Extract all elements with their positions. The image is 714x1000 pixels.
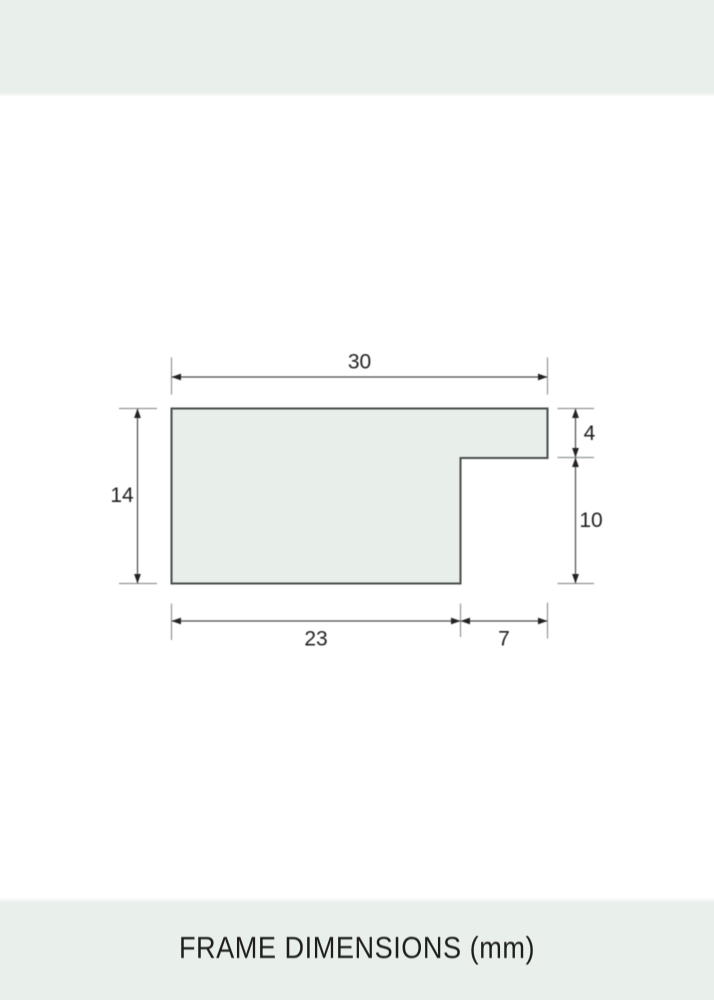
svg-text:7: 7 <box>498 628 510 651</box>
svg-text:30: 30 <box>348 351 371 374</box>
svg-text:10: 10 <box>579 509 602 532</box>
svg-text:14: 14 <box>110 484 134 507</box>
svg-text:23: 23 <box>304 628 327 651</box>
svg-text:4: 4 <box>584 422 596 445</box>
